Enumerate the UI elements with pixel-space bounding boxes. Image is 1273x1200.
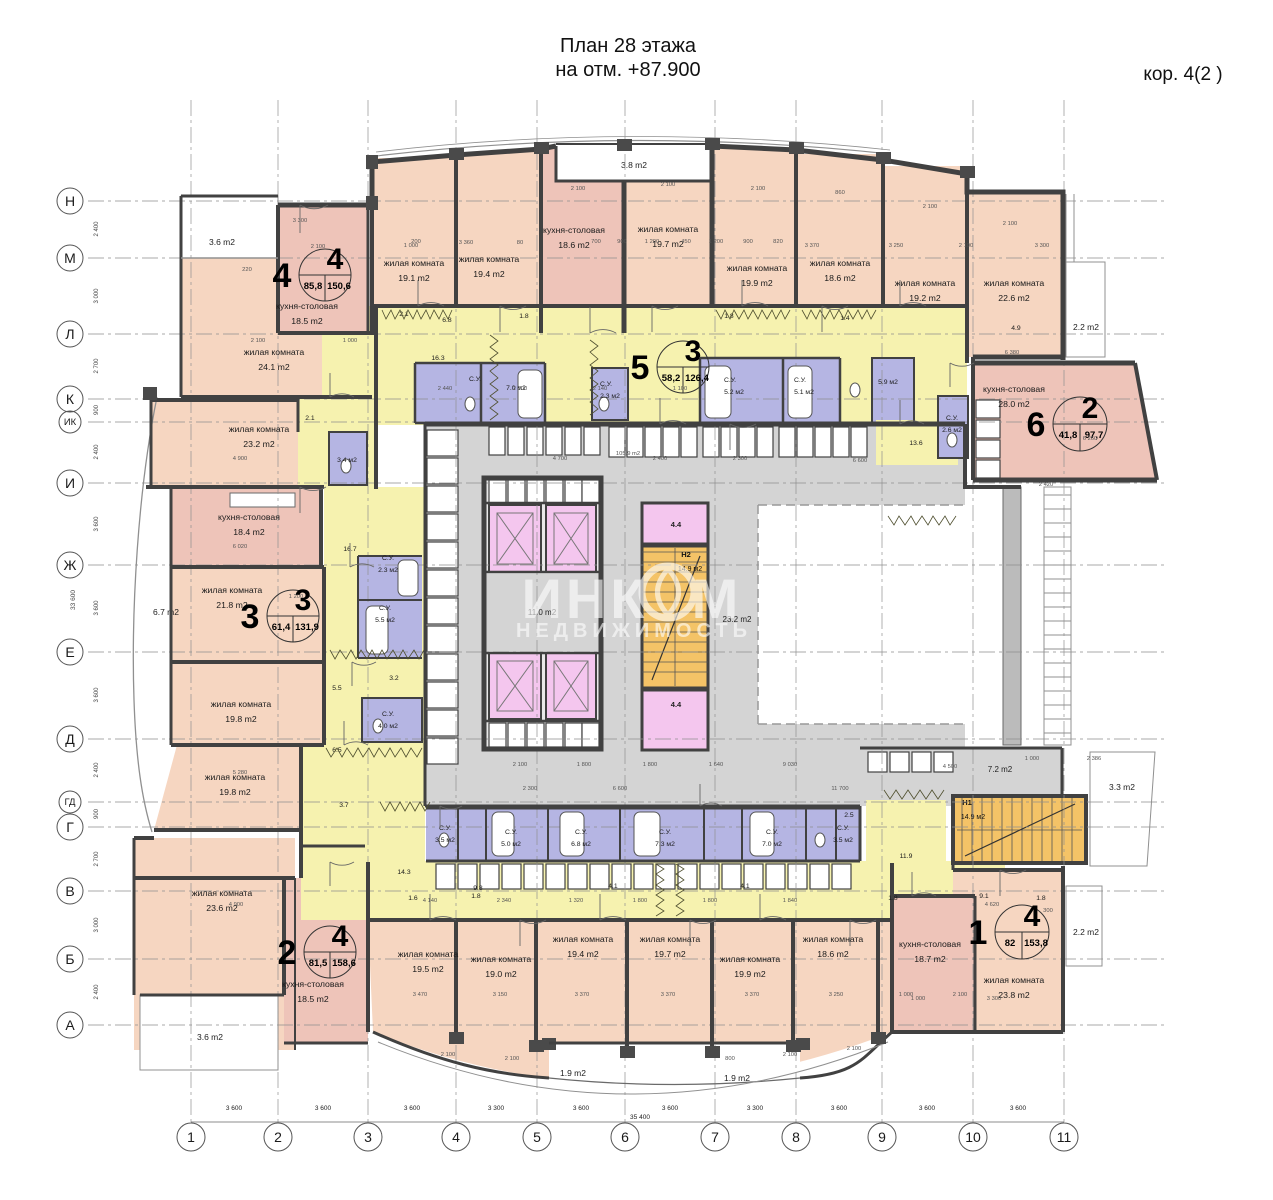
svg-text:19.0 m2: 19.0 m2 [485,969,517,979]
svg-text:2 100: 2 100 [251,338,266,344]
svg-text:35 400: 35 400 [630,1114,650,1121]
svg-text:3 470: 3 470 [413,992,428,998]
svg-text:жилая комната: жилая комната [803,934,864,944]
svg-text:3.7: 3.7 [339,802,349,809]
svg-text:9 030: 9 030 [783,762,798,768]
svg-text:33 600: 33 600 [70,590,77,610]
svg-text:1: 1 [969,914,988,952]
svg-text:кухня-столовая: кухня-столовая [276,301,338,311]
svg-text:С.У.: С.У. [766,829,778,836]
svg-text:С.У.: С.У. [382,555,394,562]
svg-text:5.0 м2: 5.0 м2 [501,841,521,848]
svg-text:2.2 m2: 2.2 m2 [1073,322,1099,332]
svg-text:19.4 m2: 19.4 m2 [567,949,599,959]
svg-text:3 000: 3 000 [94,288,100,304]
svg-text:5.2 м2: 5.2 м2 [724,389,744,396]
svg-text:1 800: 1 800 [577,762,592,768]
svg-text:ИК: ИК [64,417,77,428]
svg-text:жилая комната: жилая комната [459,254,520,264]
svg-text:6.8 м2: 6.8 м2 [571,841,591,848]
svg-text:158,6: 158,6 [332,958,356,969]
svg-text:220: 220 [242,267,252,273]
svg-text:19.4 m2: 19.4 m2 [473,269,505,279]
svg-text:58,2: 58,2 [662,373,681,384]
svg-text:С.У.: С.У. [724,377,736,384]
svg-text:Н2: Н2 [681,550,691,559]
svg-text:3 150: 3 150 [493,992,508,998]
svg-text:Е: Е [65,644,74,660]
svg-text:5.1 м2: 5.1 м2 [794,389,814,396]
svg-text:900: 900 [617,239,627,245]
svg-text:4.4: 4.4 [671,700,682,709]
svg-text:6: 6 [621,1129,629,1145]
svg-text:1 200: 1 200 [289,594,304,600]
svg-text:НЕДВИЖИМОСТЬ: НЕДВИЖИМОСТЬ [516,620,752,642]
svg-text:2 100: 2 100 [783,1052,798,1058]
svg-text:2 440: 2 440 [438,386,453,392]
svg-text:4.9: 4.9 [1011,325,1021,332]
svg-text:1 800: 1 800 [703,898,718,904]
svg-text:Н1: Н1 [962,798,972,807]
svg-text:3.4 м2: 3.4 м2 [337,457,357,464]
svg-text:860: 860 [835,190,845,196]
svg-text:9.1: 9.1 [979,893,989,900]
svg-text:6 260: 6 260 [1083,436,1098,442]
svg-text:3 600: 3 600 [573,1105,590,1112]
svg-text:7: 7 [711,1129,719,1145]
svg-text:450: 450 [681,239,691,245]
svg-text:10: 10 [965,1129,981,1145]
svg-text:8: 8 [792,1129,800,1145]
svg-text:6.7 m2: 6.7 m2 [153,607,179,617]
svg-text:Д: Д [65,731,75,747]
svg-text:И: И [65,475,75,491]
svg-text:1 200: 1 200 [709,239,724,245]
svg-text:700: 700 [591,239,601,245]
svg-text:жилая комната: жилая комната [984,975,1045,985]
svg-text:19.7 m2: 19.7 m2 [654,949,686,959]
svg-text:кухня-столовая: кухня-столовая [983,384,1045,394]
svg-text:3.5 м2: 3.5 м2 [435,837,455,844]
svg-text:С.У.: С.У. [382,711,394,718]
svg-text:4: 4 [273,257,292,295]
svg-text:900: 900 [94,404,100,415]
svg-text:2 100: 2 100 [923,204,938,210]
svg-text:2 100: 2 100 [571,186,586,192]
svg-text:2: 2 [274,1129,282,1145]
svg-text:3.2: 3.2 [389,675,399,682]
svg-text:1 000: 1 000 [911,996,926,1002]
svg-text:С.У.: С.У. [505,829,517,836]
svg-text:300: 300 [1043,908,1053,914]
svg-text:3 250: 3 250 [889,243,904,249]
svg-text:1 100: 1 100 [673,386,688,392]
svg-text:105.9 m2: 105.9 m2 [616,451,640,457]
svg-text:11.9: 11.9 [900,853,913,860]
svg-text:1 000: 1 000 [343,338,358,344]
svg-text:6 380: 6 380 [1005,350,1020,356]
svg-text:80: 80 [517,240,523,246]
svg-text:200: 200 [411,239,421,245]
svg-text:3 370: 3 370 [575,992,590,998]
svg-text:жилая комната: жилая комната [810,258,871,268]
svg-text:3 370: 3 370 [805,243,820,249]
svg-text:2.1: 2.1 [305,415,315,422]
svg-text:85,8: 85,8 [304,281,323,292]
svg-text:4.1: 4.1 [740,883,750,890]
svg-text:19.2 m2: 19.2 m2 [909,293,941,303]
svg-text:3 600: 3 600 [94,687,100,703]
svg-text:19.8 m2: 19.8 m2 [225,714,257,724]
svg-text:3 600: 3 600 [94,516,100,532]
svg-text:2 100: 2 100 [953,992,968,998]
svg-text:6: 6 [1027,406,1046,444]
svg-text:3 300: 3 300 [1035,243,1050,249]
svg-text:2.6 м2: 2.6 м2 [942,427,962,434]
svg-text:2 100: 2 100 [441,1052,456,1058]
svg-text:18.6 m2: 18.6 m2 [558,240,590,250]
svg-text:С.У.: С.У. [837,825,849,832]
svg-text:153,8: 153,8 [1024,938,1048,949]
svg-text:жилая комната: жилая комната [471,954,532,964]
svg-text:2 100: 2 100 [751,186,766,192]
svg-text:23.8 m2: 23.8 m2 [998,990,1030,1000]
svg-text:28.0 m2: 28.0 m2 [998,399,1030,409]
svg-text:3 370: 3 370 [661,992,676,998]
svg-text:900: 900 [743,239,753,245]
svg-text:6 600: 6 600 [613,786,628,792]
svg-text:кухня-столовая: кухня-столовая [282,979,344,989]
svg-text:3: 3 [241,598,260,636]
svg-text:2 100: 2 100 [505,1056,520,1062]
svg-text:3: 3 [685,335,702,368]
svg-text:61,4: 61,4 [272,622,291,633]
svg-text:3: 3 [364,1129,372,1145]
svg-text:18.7 m2: 18.7 m2 [914,954,946,964]
svg-text:2 300: 2 300 [733,456,748,462]
svg-text:9: 9 [878,1129,886,1145]
svg-text:3.6 m2: 3.6 m2 [197,1032,223,1042]
svg-text:2 100: 2 100 [959,243,974,249]
svg-text:2 300: 2 300 [513,386,528,392]
svg-text:кор. 4(2 ): кор. 4(2 ) [1143,64,1222,85]
svg-text:3 370: 3 370 [745,992,760,998]
svg-text:4.4: 4.4 [671,520,682,529]
svg-text:С.У.: С.У. [659,829,671,836]
svg-text:2 100: 2 100 [311,244,326,250]
svg-text:3 250: 3 250 [829,992,844,998]
svg-text:4: 4 [1024,900,1041,933]
svg-text:1 800: 1 800 [633,898,648,904]
svg-text:С.У.: С.У. [469,376,481,383]
svg-text:3 360: 3 360 [459,240,474,246]
svg-text:жилая комната: жилая комната [720,954,781,964]
svg-text:План 28 этажа: План 28 этажа [560,35,697,57]
svg-text:2.2 m2: 2.2 m2 [1073,927,1099,937]
svg-text:2 100: 2 100 [661,182,676,188]
svg-text:6 600: 6 600 [853,458,868,464]
svg-text:1: 1 [187,1129,195,1145]
svg-text:14.3: 14.3 [397,869,410,876]
svg-text:1 320: 1 320 [569,898,584,904]
svg-text:2 400: 2 400 [94,444,100,460]
svg-text:19.5 m2: 19.5 m2 [412,964,444,974]
svg-text:1 000: 1 000 [1025,756,1040,762]
svg-text:3 600: 3 600 [94,600,100,616]
svg-text:2 420: 2 420 [1039,482,1054,488]
svg-text:1.6: 1.6 [408,895,418,902]
svg-text:18.4 m2: 18.4 m2 [233,527,265,537]
svg-text:3.3 m2: 3.3 m2 [1109,782,1135,792]
svg-text:1 640: 1 640 [709,762,724,768]
svg-text:3 600: 3 600 [226,1105,243,1112]
svg-text:Ж: Ж [64,557,77,573]
svg-text:131,9: 131,9 [295,622,319,633]
svg-text:2 300: 2 300 [523,786,538,792]
svg-text:18.5 m2: 18.5 m2 [297,994,329,1004]
svg-text:22.6 m2: 22.6 m2 [998,293,1030,303]
svg-text:4 700: 4 700 [553,456,568,462]
svg-text:жилая комната: жилая комната [984,278,1045,288]
svg-text:М: М [64,250,76,266]
svg-text:2 140: 2 140 [593,386,608,392]
svg-text:19.9 m2: 19.9 m2 [741,278,773,288]
svg-text:82: 82 [1005,938,1016,949]
svg-text:2 100: 2 100 [513,762,528,768]
svg-text:4: 4 [452,1129,460,1145]
svg-text:К: К [66,391,75,407]
svg-text:1.8: 1.8 [471,893,481,900]
svg-text:4.0 м2: 4.0 м2 [378,723,398,730]
svg-text:2 340: 2 340 [497,898,512,904]
svg-text:2 100: 2 100 [847,1046,862,1052]
svg-text:2: 2 [278,934,297,972]
svg-text:900: 900 [94,808,100,819]
svg-text:1.8: 1.8 [519,313,529,320]
svg-text:18.6 m2: 18.6 m2 [824,273,856,283]
svg-text:2 400: 2 400 [94,221,100,237]
svg-text:кухня-столовая: кухня-столовая [543,225,605,235]
svg-text:3 600: 3 600 [831,1105,848,1112]
svg-text:4: 4 [332,920,349,953]
svg-text:Л: Л [65,326,74,342]
svg-text:13.6: 13.6 [909,440,922,447]
svg-text:19.1 m2: 19.1 m2 [398,273,430,283]
svg-text:2.5: 2.5 [844,812,854,819]
svg-text:С.У.: С.У. [946,415,958,422]
svg-text:2.3 м2: 2.3 м2 [600,393,620,400]
svg-text:2 400: 2 400 [94,762,100,778]
svg-text:2 400: 2 400 [94,984,100,1000]
svg-text:С.У.: С.У. [794,377,806,384]
svg-text:3.5 м2: 3.5 м2 [833,837,853,844]
svg-text:23.2 m2: 23.2 m2 [243,439,275,449]
svg-text:16.3: 16.3 [431,355,444,362]
svg-text:5.9 м2: 5.9 м2 [878,379,898,386]
svg-text:24.1 m2: 24.1 m2 [258,362,290,372]
svg-text:С.У.: С.У. [379,605,391,612]
svg-text:3 000: 3 000 [94,917,100,933]
svg-text:жилая комната: жилая комната [202,585,263,595]
svg-text:жилая комната: жилая комната [398,949,459,959]
svg-text:4 900: 4 900 [233,456,248,462]
svg-text:6 020: 6 020 [233,544,248,550]
svg-text:С.У.: С.У. [439,825,451,832]
svg-text:2: 2 [1082,392,1099,425]
svg-text:2 386: 2 386 [1087,756,1102,762]
svg-text:2.3 м2: 2.3 м2 [378,567,398,574]
svg-text:2 700: 2 700 [94,358,100,374]
svg-text:1.8: 1.8 [888,895,898,902]
svg-text:жилая комната: жилая комната [384,258,445,268]
svg-text:1 800: 1 800 [643,762,658,768]
svg-text:7.3 м2: 7.3 м2 [655,841,675,848]
svg-text:А: А [65,1017,75,1033]
svg-text:41,8: 41,8 [1059,430,1078,441]
svg-text:3 600: 3 600 [315,1105,332,1112]
svg-text:150,6: 150,6 [327,281,351,292]
svg-text:С.У.: С.У. [575,829,587,836]
svg-text:3 300: 3 300 [747,1105,764,1112]
svg-text:5.5: 5.5 [332,685,342,692]
svg-text:11: 11 [1057,1129,1072,1145]
svg-text:5 280: 5 280 [233,770,248,776]
svg-text:5.5 м2: 5.5 м2 [375,617,395,624]
svg-text:жилая комната: жилая комната [553,934,614,944]
svg-text:19.8 m2: 19.8 m2 [219,787,251,797]
svg-text:жилая комната: жилая комната [640,934,701,944]
svg-text:7.0 м2: 7.0 м2 [762,841,782,848]
svg-text:5: 5 [631,349,650,387]
svg-text:81,5: 81,5 [309,958,328,969]
svg-text:жилая комната: жилая комната [895,278,956,288]
svg-text:жилая комната: жилая комната [229,424,290,434]
svg-text:4: 4 [327,243,344,276]
svg-text:1.9 m2: 1.9 m2 [560,1068,586,1078]
svg-text:4.1: 4.1 [608,883,618,890]
svg-text:жилая комната: жилая комната [727,263,788,273]
svg-text:жилая комната: жилая комната [211,699,272,709]
svg-text:18.5 m2: 18.5 m2 [291,316,323,326]
svg-text:820: 820 [773,239,783,245]
svg-text:2 700: 2 700 [94,851,100,867]
svg-text:1.9 m2: 1.9 m2 [724,1073,750,1083]
svg-text:7.2 m2: 7.2 m2 [988,765,1013,774]
svg-text:11 700: 11 700 [831,786,848,792]
svg-text:жилая комната: жилая комната [192,888,253,898]
svg-text:на отм. +87.900: на отм. +87.900 [555,59,700,81]
svg-text:1 840: 1 840 [783,898,798,904]
svg-text:4 620: 4 620 [985,902,1000,908]
svg-text:3: 3 [295,584,312,617]
svg-text:126,4: 126,4 [685,373,709,384]
svg-text:жилая комната: жилая комната [244,347,305,357]
svg-text:800: 800 [725,1056,735,1062]
svg-text:кухня-столовая: кухня-столовая [218,512,280,522]
svg-text:3 600: 3 600 [919,1105,936,1112]
svg-text:3.6 m2: 3.6 m2 [209,237,235,247]
svg-text:19.9 m2: 19.9 m2 [734,969,766,979]
svg-text:жилая комната: жилая комната [638,224,699,234]
svg-text:9.8: 9.8 [473,885,483,892]
svg-text:4 500: 4 500 [943,764,958,770]
svg-text:Б: Б [65,951,74,967]
svg-text:кухня-столовая: кухня-столовая [899,939,961,949]
svg-text:3 600: 3 600 [1010,1105,1027,1112]
svg-text:3 600: 3 600 [662,1105,679,1112]
svg-text:ГД: ГД [65,797,77,808]
svg-text:2 100: 2 100 [1003,221,1018,227]
svg-text:Г: Г [66,819,74,835]
svg-text:1 200: 1 200 [645,239,660,245]
svg-text:5: 5 [533,1129,541,1145]
svg-text:18.6 m2: 18.6 m2 [817,949,849,959]
svg-text:4 900: 4 900 [229,902,244,908]
svg-text:3 300: 3 300 [488,1105,505,1112]
svg-text:3 300: 3 300 [987,996,1002,1002]
svg-text:2 400: 2 400 [653,456,668,462]
svg-text:3 600: 3 600 [404,1105,421,1112]
svg-text:Н: Н [65,193,75,209]
svg-text:В: В [65,883,74,899]
